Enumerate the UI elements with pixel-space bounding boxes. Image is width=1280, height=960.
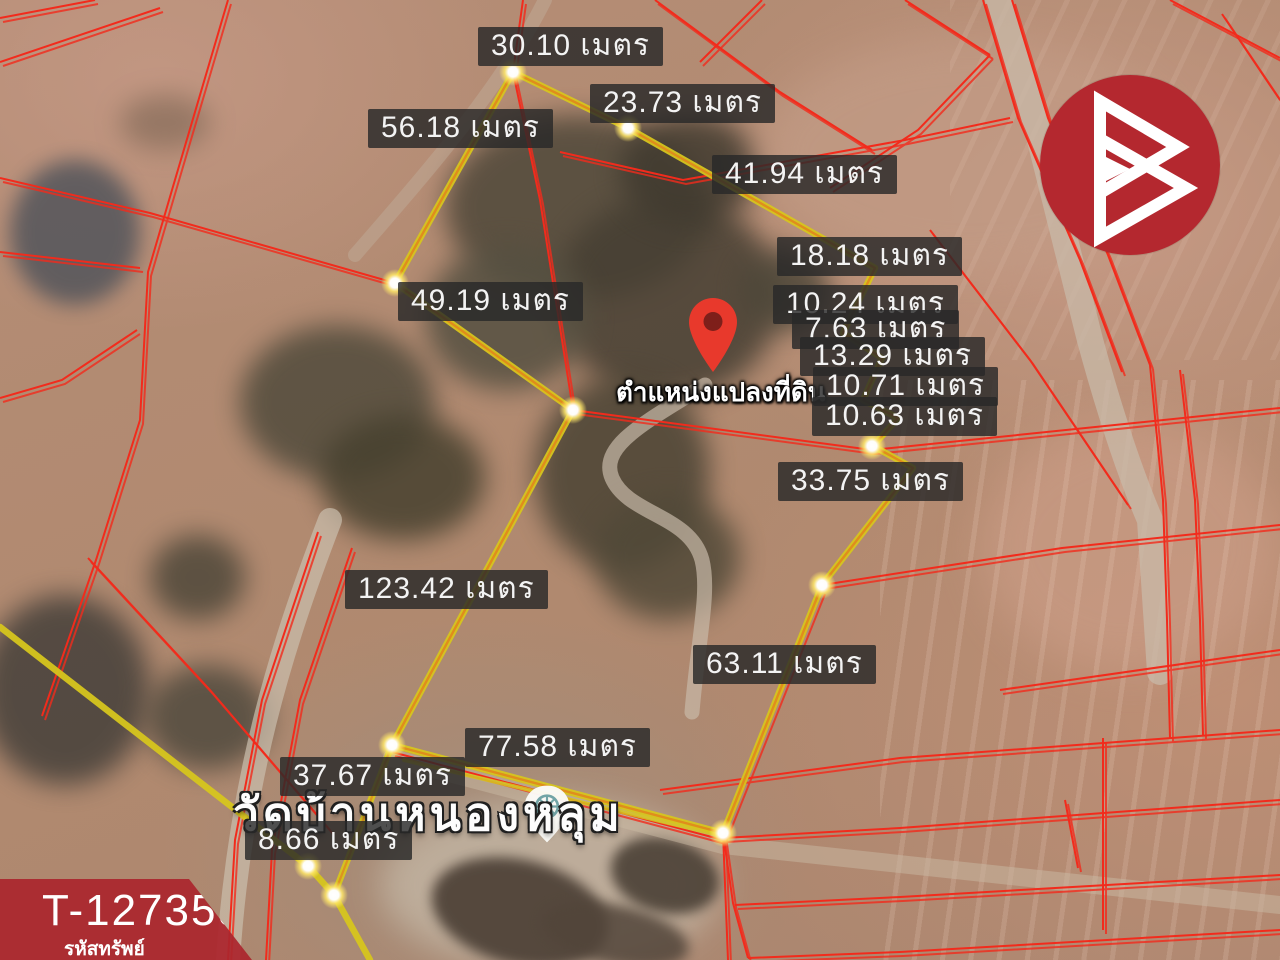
boundary-vertex-dot [320,881,348,909]
boundary-vertex-dot [808,571,836,599]
b-triangles-icon [1040,75,1220,255]
measurement-label: 30.10 เมตร [478,27,663,66]
measurement-label: 41.94 เมตร [712,155,897,194]
measurement-label: 123.42 เมตร [345,570,548,609]
pin-label: ตำแหน่งแปลงที่ดิน [616,372,826,413]
property-code-caption: รหัสทรัพย์ [64,934,145,960]
measurement-label: 63.11 เมตร [693,645,876,684]
boundary-vertex-dot [378,731,406,759]
location-pin-icon [687,296,739,374]
boundary-vertex-dot [858,432,886,460]
measurement-label: 8.66 เมตร [245,821,412,860]
measurement-label: 37.67 เมตร [280,757,465,796]
boundary-vertex-dot [709,819,737,847]
measurement-label: 49.19 เมตร [398,282,583,321]
measurement-label: 56.18 เมตร [368,109,553,148]
land-listing-map: วัดบ้านหนองหลุม 30.10 เมตร23.73 เมตร56.1… [0,0,1280,960]
measurement-label: 77.58 เมตร [465,728,650,767]
measurement-label: 33.75 เมตร [778,462,963,501]
brand-logo [1040,75,1220,255]
measurement-label: 23.73 เมตร [590,84,775,123]
measurement-label: 10.63 เมตร [812,397,997,436]
boundary-vertex-dot [559,396,587,424]
measurement-label: 18.18 เมตร [777,237,962,276]
